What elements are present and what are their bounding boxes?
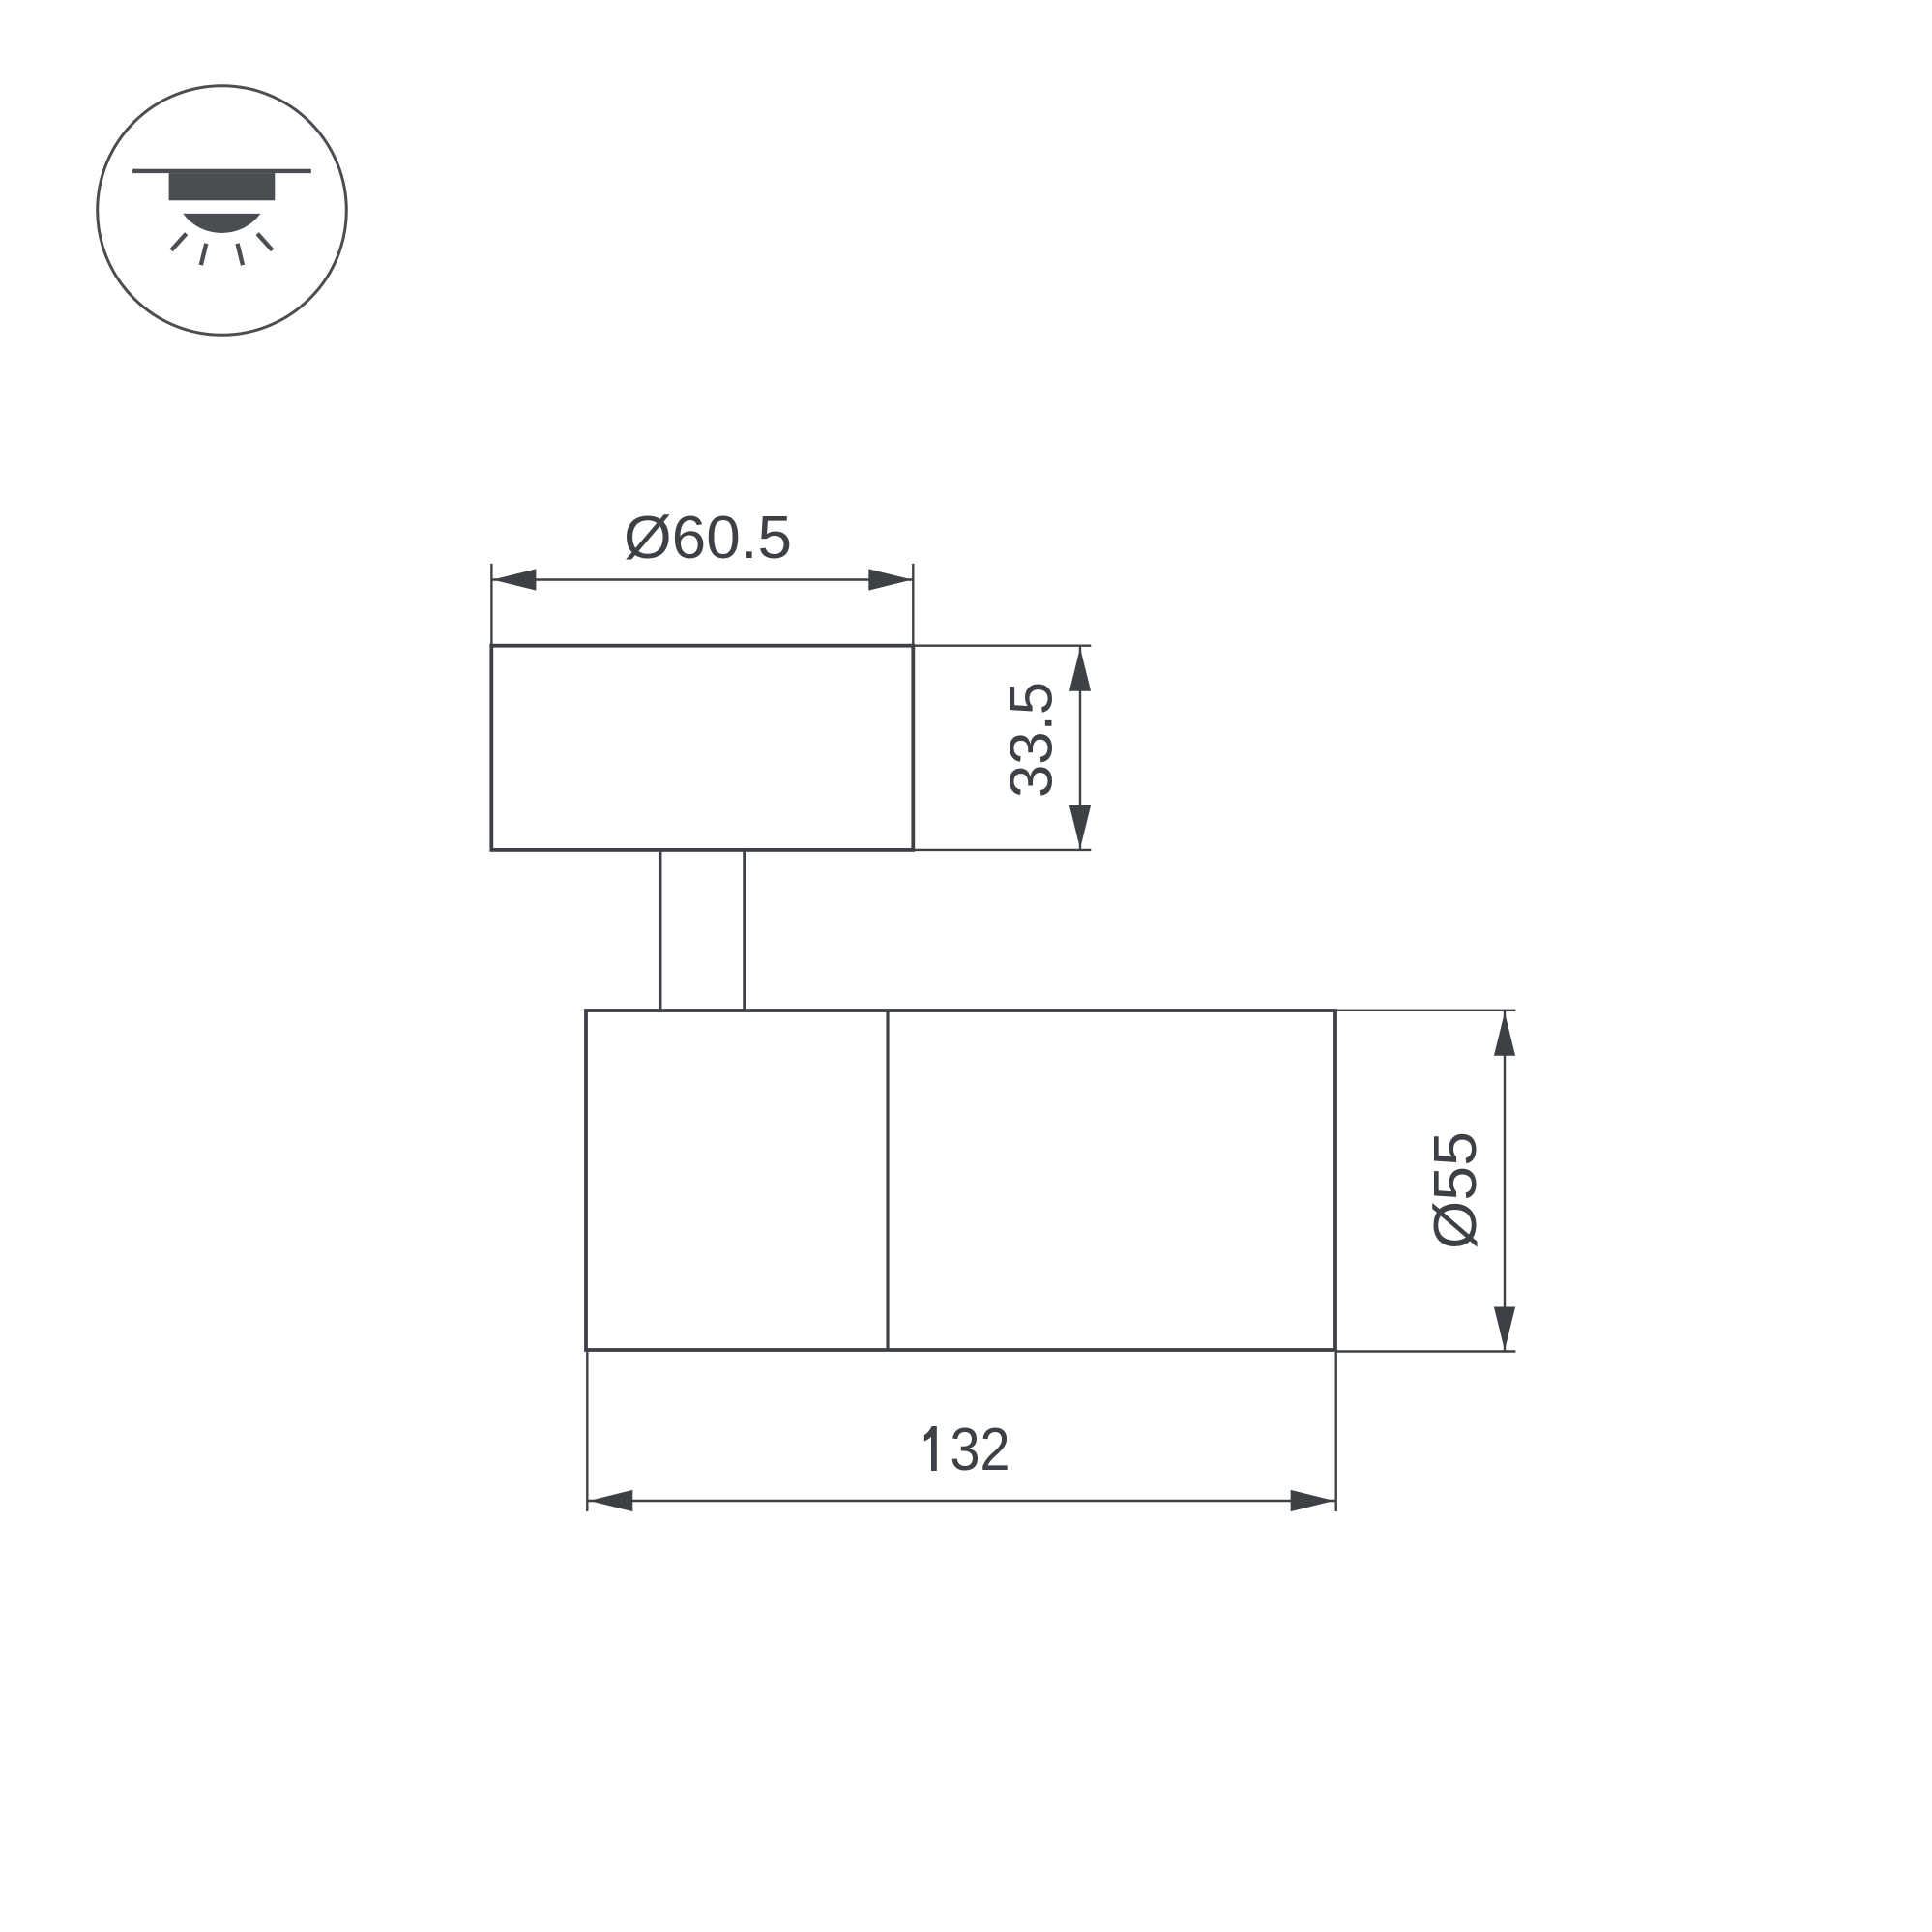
svg-text:Ø60.5: Ø60.5	[624, 505, 792, 571]
svg-text:32: 32	[951, 1417, 1010, 1483]
svg-text:33.5: 33.5	[999, 682, 1066, 798]
svg-text:Ø55: Ø55	[1422, 1131, 1489, 1249]
